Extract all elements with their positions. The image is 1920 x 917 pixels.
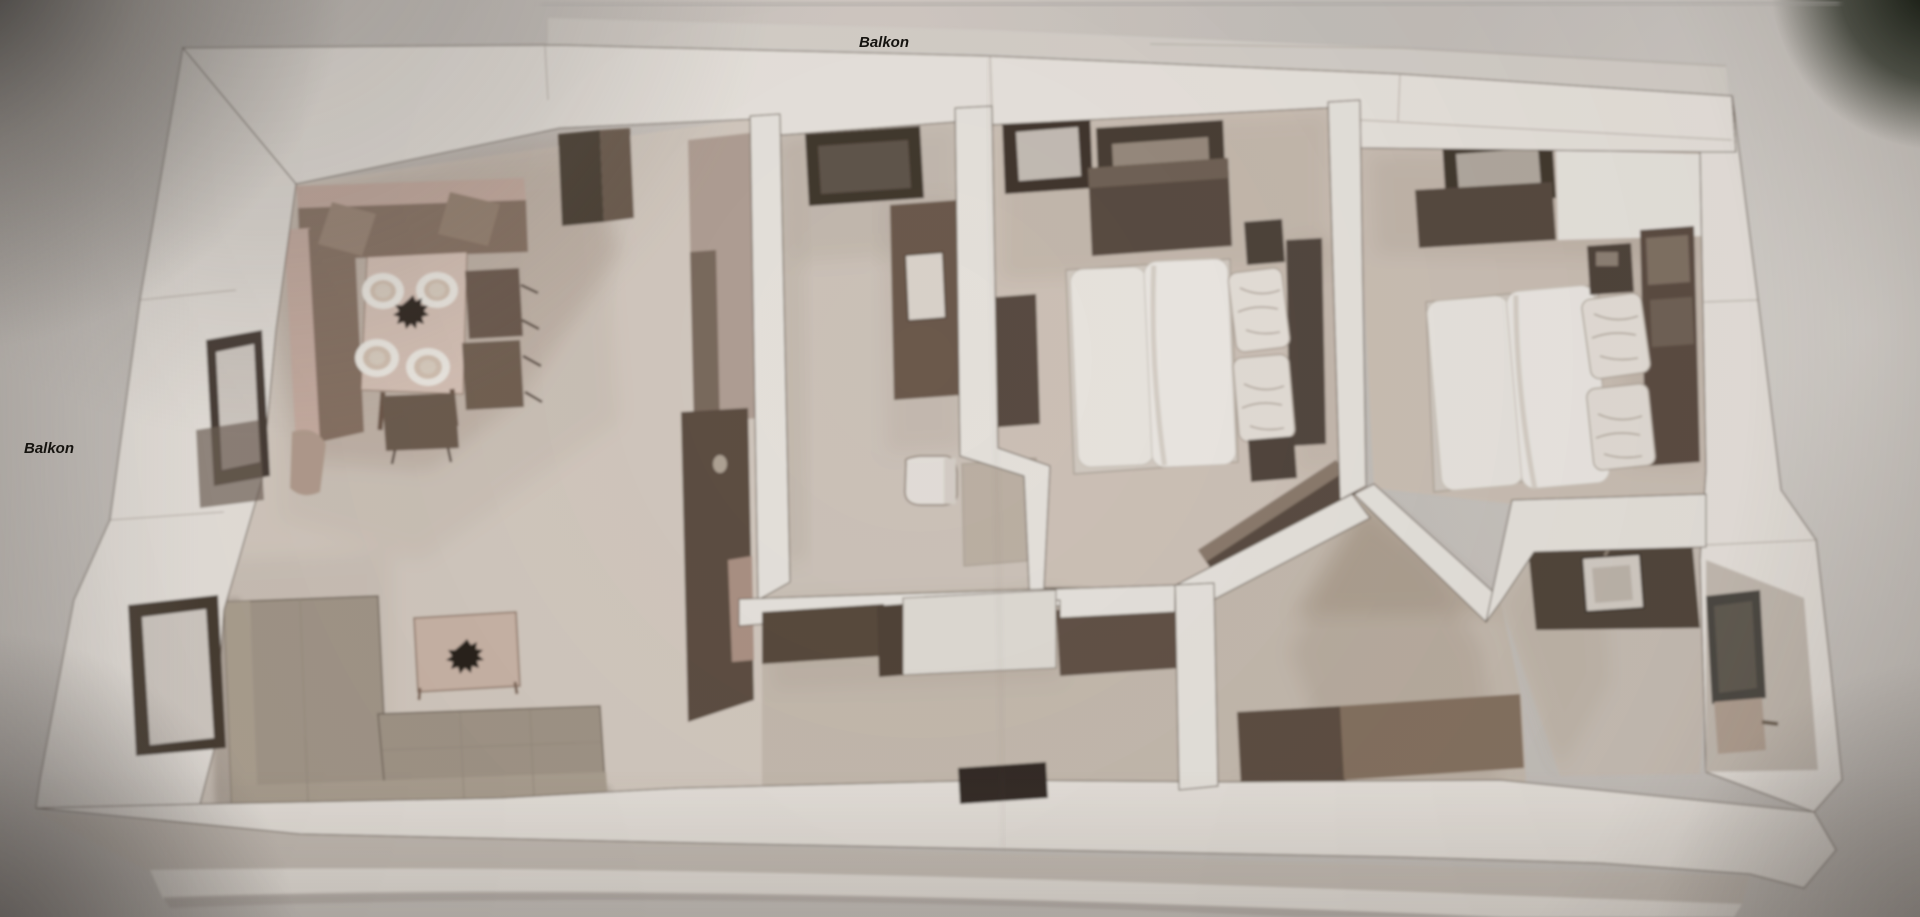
svg-text:Balkon: Balkon	[24, 440, 74, 457]
svg-text:Balkon: Balkon	[859, 34, 909, 51]
